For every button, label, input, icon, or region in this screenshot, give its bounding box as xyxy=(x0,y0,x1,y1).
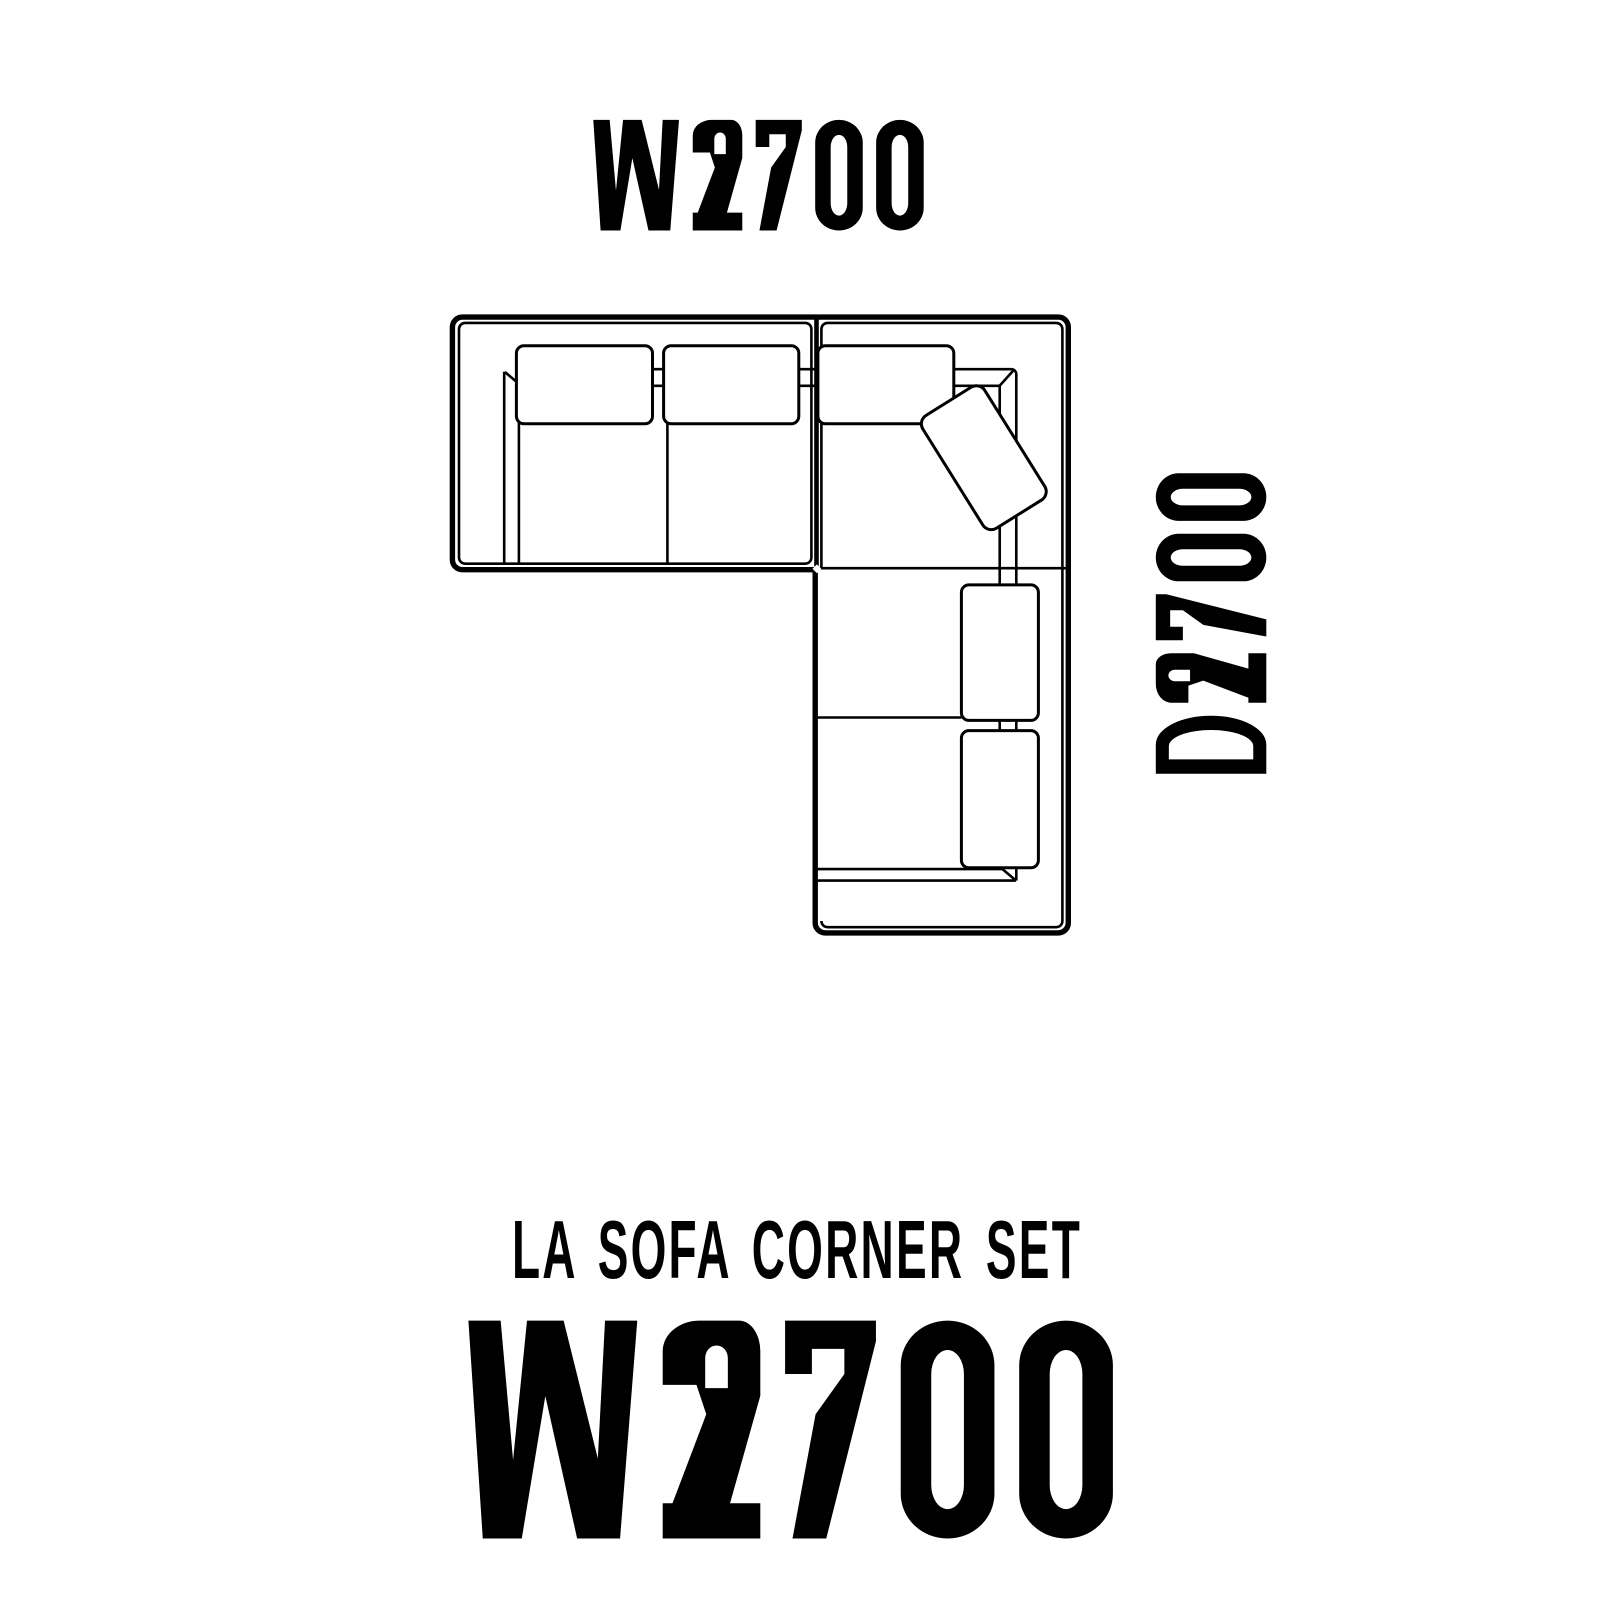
svg-text:LA SOFA CORNER SET: LA SOFA CORNER SET xyxy=(512,1203,1082,1296)
